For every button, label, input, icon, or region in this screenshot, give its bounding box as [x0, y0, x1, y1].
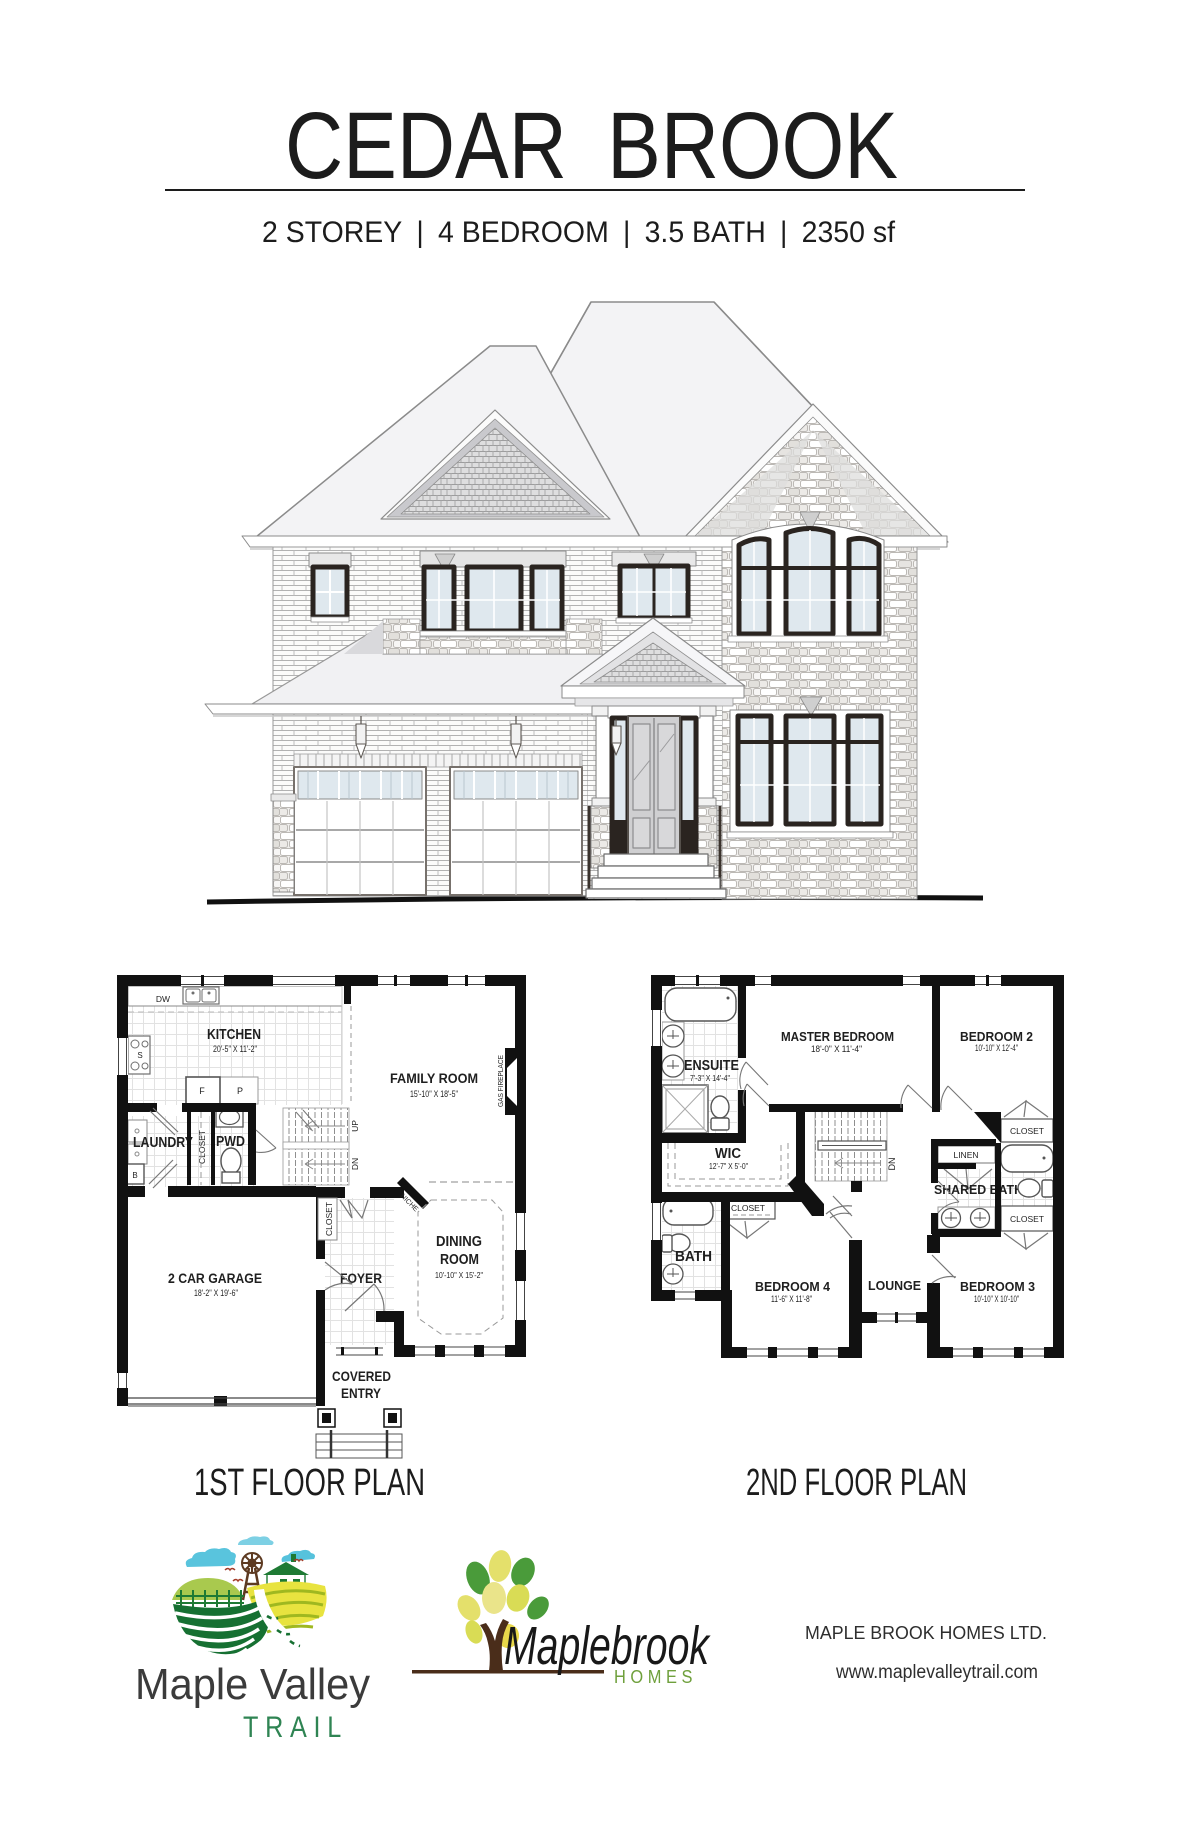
svg-text:2 STOREY | 4 BEDROOM | 3.5 BAT: 2 STOREY | 4 BEDROOM | 3.5 BATH | 2350 s…: [262, 216, 896, 249]
svg-text:BATH: BATH: [675, 1249, 712, 1265]
svg-text:F: F: [199, 1086, 205, 1096]
svg-text:CLOSET: CLOSET: [1010, 1126, 1044, 1136]
svg-text:Maple Valley: Maple Valley: [135, 1660, 370, 1709]
svg-text:WIC: WIC: [715, 1146, 741, 1162]
svg-text:KITCHEN: KITCHEN: [207, 1027, 261, 1043]
svg-text:FAMILY ROOM: FAMILY ROOM: [390, 1071, 478, 1086]
svg-text:B: B: [132, 1171, 137, 1180]
svg-text:18'-2" X 19'-6": 18'-2" X 19'-6": [194, 1288, 238, 1298]
svg-text:1ST FLOOR PLAN: 1ST FLOOR PLAN: [194, 1462, 425, 1504]
svg-text:DN: DN: [887, 1158, 897, 1171]
svg-text:GAS FIREPLACE: GAS FIREPLACE: [496, 1055, 505, 1107]
svg-text:12'-7" X 5'-0": 12'-7" X 5'-0": [709, 1161, 748, 1171]
svg-text:TRAIL: TRAIL: [243, 1711, 348, 1744]
svg-text:CLOSET: CLOSET: [731, 1203, 765, 1213]
svg-text:CEDAR BROOK: CEDAR BROOK: [285, 93, 898, 199]
svg-text:DN: DN: [350, 1158, 360, 1170]
svg-text:UP: UP: [350, 1120, 360, 1132]
svg-text:ROOM: ROOM: [440, 1252, 479, 1268]
svg-text:COVERED: COVERED: [332, 1368, 391, 1384]
svg-text:LOUNGE: LOUNGE: [868, 1278, 921, 1293]
svg-text:MASTER BEDROOM: MASTER BEDROOM: [781, 1029, 894, 1044]
svg-text:CLOSET: CLOSET: [324, 1202, 334, 1236]
svg-text:DW: DW: [156, 994, 170, 1004]
svg-text:HOMES: HOMES: [614, 1667, 697, 1687]
svg-text:ENTRY: ENTRY: [341, 1385, 382, 1401]
svg-text:P: P: [237, 1086, 243, 1096]
svg-text:20'-5" X 11'-2": 20'-5" X 11'-2": [213, 1044, 257, 1054]
svg-text:CLOSET: CLOSET: [197, 1130, 207, 1164]
svg-text:10'-10" X 15'-2": 10'-10" X 15'-2": [435, 1270, 483, 1280]
svg-text:www.maplevalleytrail.com: www.maplevalleytrail.com: [835, 1662, 1038, 1683]
svg-text:11'-6" X 11'-8": 11'-6" X 11'-8": [771, 1294, 812, 1304]
svg-text:2ND FLOOR PLAN: 2ND FLOOR PLAN: [746, 1462, 967, 1504]
svg-text:CLOSET: CLOSET: [1010, 1214, 1044, 1224]
svg-text:7'-3" X 14'-4": 7'-3" X 14'-4": [690, 1073, 730, 1083]
svg-text:LINEN: LINEN: [953, 1150, 978, 1160]
svg-text:BEDROOM 4: BEDROOM 4: [755, 1279, 831, 1294]
svg-text:BEDROOM 3: BEDROOM 3: [960, 1279, 1035, 1294]
svg-text:MAPLE BROOK HOMES LTD.: MAPLE BROOK HOMES LTD.: [805, 1622, 1047, 1643]
svg-text:S: S: [137, 1051, 142, 1060]
svg-text:DINING: DINING: [436, 1234, 482, 1250]
svg-text:PWD: PWD: [216, 1134, 245, 1150]
svg-text:10'-10" X 10'-10": 10'-10" X 10'-10": [974, 1294, 1019, 1304]
svg-text:ENSUITE: ENSUITE: [684, 1058, 739, 1074]
svg-text:2 CAR GARAGE: 2 CAR GARAGE: [168, 1271, 262, 1286]
svg-text:15'-10" X 18'-5": 15'-10" X 18'-5": [410, 1089, 458, 1099]
svg-text:BEDROOM 2: BEDROOM 2: [960, 1029, 1033, 1044]
svg-text:18'-0" X 11'-4": 18'-0" X 11'-4": [811, 1044, 862, 1054]
svg-text:10'-10" X 12'-4": 10'-10" X 12'-4": [975, 1043, 1018, 1053]
svg-text:LAUNDRY: LAUNDRY: [133, 1135, 193, 1151]
